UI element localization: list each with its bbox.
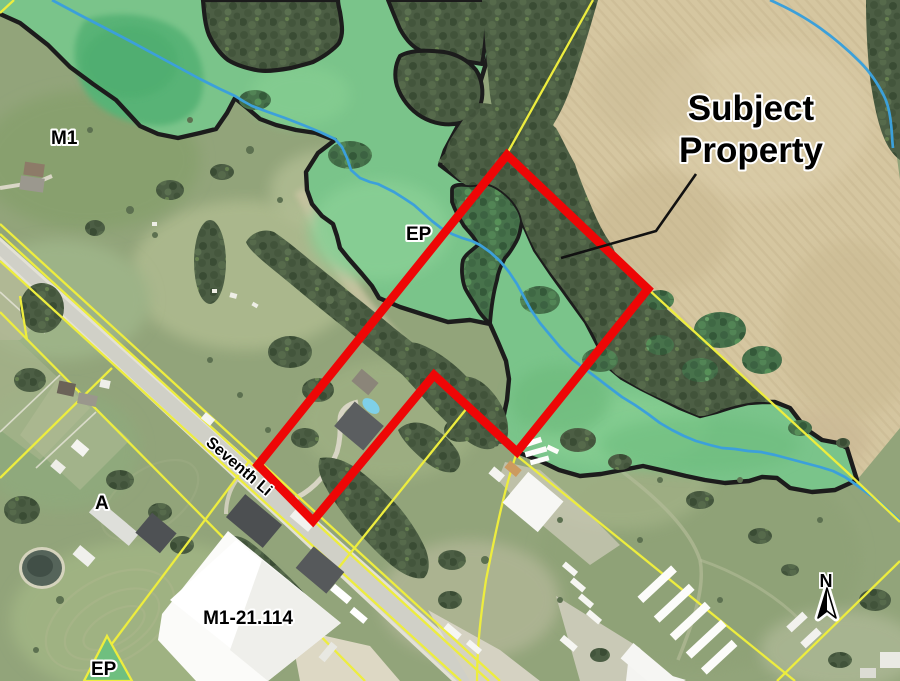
- svg-text:M1: M1: [51, 128, 78, 149]
- svg-text:EP: EP: [91, 659, 117, 680]
- svg-text:A: A: [95, 493, 109, 514]
- svg-text:Subject: Subject: [688, 89, 815, 128]
- svg-text:EP: EP: [406, 224, 432, 245]
- svg-text:Property: Property: [679, 131, 823, 170]
- svg-text:M1-21.114: M1-21.114: [203, 608, 293, 629]
- svg-text:N: N: [820, 571, 833, 591]
